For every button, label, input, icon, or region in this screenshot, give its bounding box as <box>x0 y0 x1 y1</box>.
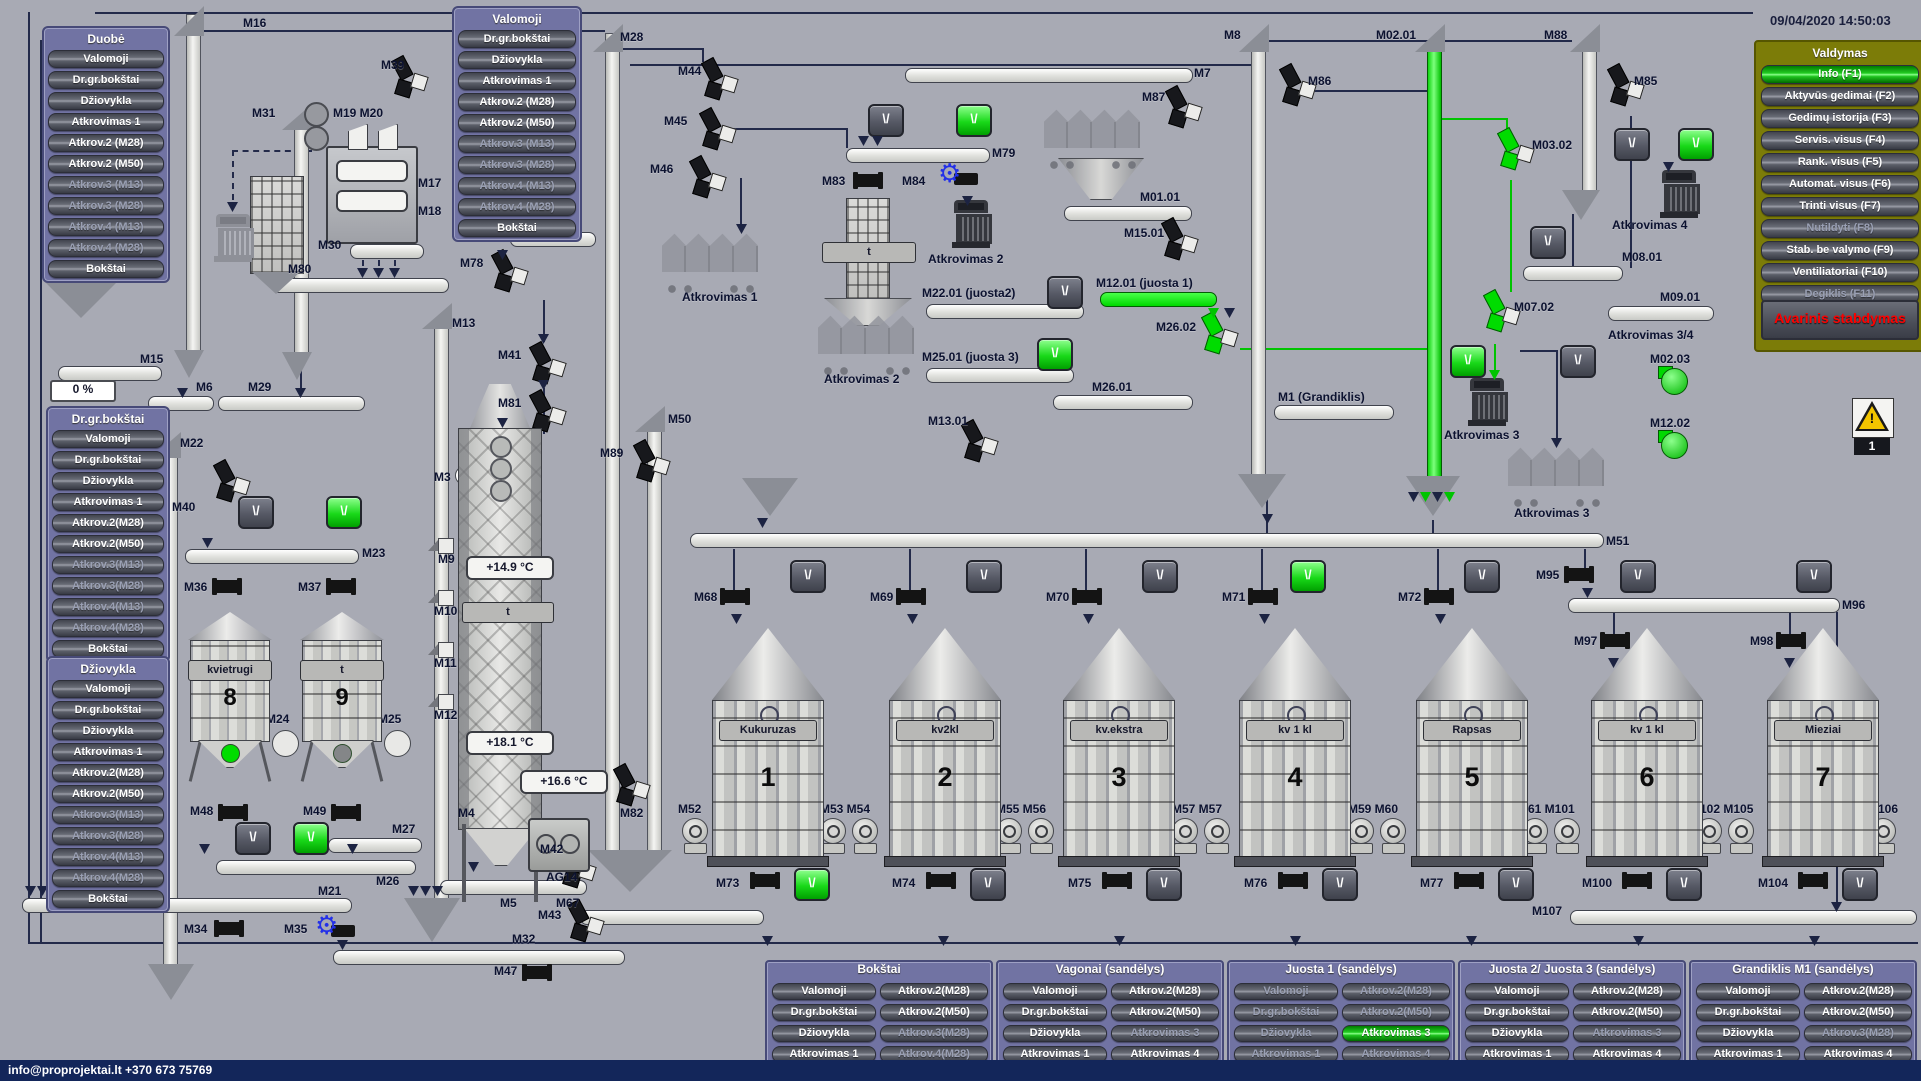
valve-button[interactable]: \/ <box>1796 560 1832 593</box>
conveyor-m30[interactable] <box>350 244 424 259</box>
bottom-menu-2-right-0[interactable]: Atkrov.2(M28) <box>1342 983 1450 1000</box>
aeration-fan-m105[interactable] <box>1728 818 1754 854</box>
blower-m12-02[interactable] <box>1658 430 1688 458</box>
gearmotor-m35[interactable]: ⚙ <box>315 918 355 944</box>
flow-arrow <box>199 844 210 854</box>
menu-duobe-item-2[interactable]: Džiovykla <box>48 92 164 110</box>
diverter-m78-legr <box>510 267 529 286</box>
temp-display-1: +14.9 °C <box>466 556 554 580</box>
conveyor-m12-01[interactable] <box>1100 292 1217 307</box>
label-m45: M45 <box>664 114 687 128</box>
valve-button[interactable]: \/ <box>293 822 329 855</box>
valdymas-item-7[interactable]: Nutildyti (F8) <box>1761 219 1919 238</box>
bottom-menu-4-left-0[interactable]: Valomoji <box>1696 983 1800 1000</box>
valve-button[interactable]: \/ <box>1614 128 1650 161</box>
valve-button[interactable]: \/ <box>1666 868 1702 901</box>
label-m12: M12 <box>434 708 457 722</box>
valve-button[interactable]: \/ <box>970 868 1006 901</box>
menu-valomoji-item-4[interactable]: Atkrov.2 (M50) <box>458 114 576 132</box>
label-m35: M35 <box>284 922 307 936</box>
label-m30: M30 <box>318 238 341 252</box>
menu-valomoji-item-0[interactable]: Dr.gr.bokštai <box>458 30 576 48</box>
motor-m72[interactable] <box>1426 590 1452 603</box>
flow-arrow <box>373 268 384 278</box>
diverter-m82-stem <box>613 763 636 789</box>
motor-m104[interactable] <box>1800 874 1826 887</box>
menu-duobe-item-7[interactable]: Atkrov.3 (M28) <box>48 197 164 215</box>
diverter-m78[interactable] <box>481 245 533 302</box>
flow-arrow <box>757 518 768 528</box>
small-silo-8-name-plate: kvietrugi <box>188 660 272 681</box>
diverter-m46[interactable] <box>679 151 731 208</box>
sensor-m10-probe <box>428 592 438 603</box>
bottom-menu-2-left-1[interactable]: Dr.gr.bokštai <box>1234 1004 1338 1021</box>
label-m18: M18 <box>418 204 441 218</box>
truck-intake-wnd <box>220 217 246 224</box>
menu-dziovykla-item-4[interactable]: Atkrov.2(M28) <box>52 764 164 782</box>
truck-atkrovimas3-wnd <box>1474 381 1500 388</box>
conveyor-m09-01[interactable] <box>1608 306 1714 321</box>
aeration-fan-m57a[interactable] <box>1172 818 1198 854</box>
menu-drgr-item-2[interactable]: Džiovykla <box>52 472 164 490</box>
menu-dziovykla-item-1[interactable]: Dr.gr.bokštai <box>52 701 164 719</box>
valdymas-item-1[interactable]: Aktyvūs gedimai (F2) <box>1761 87 1919 106</box>
menu-dziovykla-item-7[interactable]: Atkrov.3(M28) <box>52 827 164 845</box>
flow-arrow <box>1435 614 1446 624</box>
diverter-m15-01[interactable] <box>1151 213 1203 270</box>
bottom-menu-1-left-0[interactable]: Valomoji <box>1003 983 1107 1000</box>
diverter-m89-legr <box>652 457 671 476</box>
footer-contact-bar: info@proprojektai.lt +370 673 75769 <box>0 1060 1921 1081</box>
motor-m73[interactable] <box>752 874 778 887</box>
motor-m69[interactable] <box>898 590 924 603</box>
menu-drgr-item-5[interactable]: Atkrov.2(M50) <box>52 535 164 553</box>
bottom-menu-3-left-1[interactable]: Dr.gr.bokštai <box>1465 1004 1569 1021</box>
aeration-fan-m60-base <box>1382 843 1405 854</box>
bottom-menu-3-left-2[interactable]: Džiovykla <box>1465 1025 1569 1042</box>
sensor-m12-probe <box>428 696 438 707</box>
valdymas-item-3[interactable]: Servis. visus (F4) <box>1761 131 1919 150</box>
silo-2-number: 2 <box>889 762 1001 793</box>
gearmotor-m84[interactable]: ⚙ <box>938 166 978 192</box>
valve-button[interactable]: \/ <box>956 104 992 137</box>
menu-dziovykla-item-0[interactable]: Valomoji <box>52 680 164 698</box>
motor-m100[interactable] <box>1624 874 1650 887</box>
scale-plate-t: t <box>822 242 916 263</box>
diverter-m89[interactable] <box>623 435 675 492</box>
chute-m16-top <box>174 6 204 36</box>
menu-duobe-item-5[interactable]: Atkrov.2 (M50) <box>48 155 164 173</box>
valdymas-item-9[interactable]: Ventiliatoriai (F10) <box>1761 263 1919 282</box>
label-m09-01: M09.01 <box>1660 290 1700 304</box>
bottom-menu-4-right-1[interactable]: Atkrov.2(M50) <box>1804 1004 1912 1021</box>
label-m75: M75 <box>1068 876 1091 890</box>
silo-1-roof <box>712 628 824 700</box>
menu-drgr-item-4[interactable]: Atkrov.2(M28) <box>52 514 164 532</box>
conveyor-m96[interactable] <box>1568 598 1840 613</box>
motor-m76[interactable] <box>1280 874 1306 887</box>
bottom-menu-2-right-1[interactable]: Atkrov.2(M50) <box>1342 1004 1450 1021</box>
silo-7-name-plate: Mieziai <box>1774 720 1872 741</box>
aeration-fan-m56[interactable] <box>1028 818 1054 854</box>
pipe <box>1432 520 1434 534</box>
valve-button[interactable]: \/ <box>966 560 1002 593</box>
elevator-m16[interactable] <box>186 14 201 352</box>
motor-m83[interactable] <box>855 174 881 187</box>
bottom-menu-3-right-0[interactable]: Atkrov.2(M28) <box>1573 983 1681 1000</box>
conveyor-m67[interactable] <box>580 910 764 925</box>
bottom-menu-3-title: Juosta 2/ Juosta 3 (sandėlys) <box>1460 962 1684 977</box>
silo-6-base <box>1586 856 1708 867</box>
conveyor-m79[interactable] <box>846 148 990 163</box>
truck-atkrovimas3 <box>1464 378 1510 426</box>
valdymas-item-4[interactable]: Rank. visus (F5) <box>1761 153 1919 172</box>
conveyor-m1-grandiklis[interactable] <box>1274 405 1394 420</box>
valve-button[interactable]: \/ <box>790 560 826 593</box>
truck-atkrovimas4 <box>1656 170 1702 218</box>
bottom-menu-1-right-0[interactable]: Atkrov.2(M28) <box>1111 983 1219 1000</box>
flow-arrow <box>227 202 238 212</box>
bottom-menu-1-right-2[interactable]: Atkrovimas 3 <box>1111 1025 1219 1042</box>
valdymas-item-6[interactable]: Trinti visus (F7) <box>1761 197 1919 216</box>
label-m26-01: M26.01 <box>1092 380 1132 394</box>
label-atkrovimas3-truck: Atkrovimas 3 <box>1444 428 1519 442</box>
menu-panel-valomoji: ValomojiDr.gr.bokštaiDžiovyklaAtkrovimas… <box>452 6 582 242</box>
chute-m88-top <box>1570 24 1600 52</box>
datetime-display: 09/04/2020 14:50:03 <box>1770 13 1891 28</box>
diverter-m15-01-legr <box>1180 235 1199 254</box>
motor-m48[interactable] <box>220 806 246 819</box>
pipe <box>740 178 742 226</box>
diverter-m45-stem <box>699 107 722 133</box>
label-m12-02: M12.02 <box>1650 416 1690 430</box>
aeration-fan-m52[interactable] <box>682 818 708 854</box>
flow-arrow <box>1259 614 1270 624</box>
menu-duobe-item-9[interactable]: Atkrov.4 (M28) <box>48 239 164 257</box>
bottom-menu-1-right-1[interactable]: Atkrov.2(M50) <box>1111 1004 1219 1021</box>
aeration-fan-m59[interactable] <box>1348 818 1374 854</box>
flow-arrow <box>858 136 869 146</box>
label-m89: M89 <box>600 446 623 460</box>
conveyor-m15[interactable] <box>58 366 162 381</box>
flow-arrow <box>357 268 368 278</box>
label-m68: M68 <box>694 590 717 604</box>
silo-6: kv 1 kl6 <box>1591 628 1703 864</box>
bottom-menu-0-left-1[interactable]: Dr.gr.bokštai <box>772 1004 876 1021</box>
menu-valomoji-item-2[interactable]: Atkrovimas 1 <box>458 72 576 90</box>
bottom-menu-0-left-2[interactable]: Džiovykla <box>772 1025 876 1042</box>
menu-duobe-item-3[interactable]: Atkrovimas 1 <box>48 113 164 131</box>
label-m11: M11 <box>434 656 457 670</box>
pipe-green <box>1440 118 1508 120</box>
bottom-menu-1-left-1[interactable]: Dr.gr.bokštai <box>1003 1004 1107 1021</box>
menu-duobe-item-1[interactable]: Dr.gr.bokštai <box>48 71 164 89</box>
label-m74: M74 <box>892 876 915 890</box>
conveyor-m23[interactable] <box>185 549 359 564</box>
label-m55-m56: M55 M56 <box>996 802 1046 816</box>
label-m80: M80 <box>288 262 311 276</box>
label-m22-01: M22.01 (juosta2) <box>922 286 1015 300</box>
bottom-menu-3-left-0[interactable]: Valomoji <box>1465 983 1569 1000</box>
truck-atkrovimas4-wnd <box>1666 173 1692 180</box>
elevator-m8[interactable] <box>1251 48 1266 478</box>
valve-button[interactable]: \/ <box>1322 868 1358 901</box>
label-m70: M70 <box>1046 590 1069 604</box>
menu-valomoji-item-1[interactable]: Džiovykla <box>458 51 576 69</box>
indicator-m24 <box>272 730 299 757</box>
motor-m68[interactable] <box>722 590 748 603</box>
motor-m70[interactable] <box>1074 590 1100 603</box>
valve-button[interactable]: \/ <box>868 104 904 137</box>
silo-7-base <box>1762 856 1884 867</box>
aeration-fan-m54[interactable] <box>852 818 878 854</box>
bottom-menu-4-left-column: ValomojiDr.gr.bokštaiDžiovyklaAtkrovimas… <box>1696 979 1798 1063</box>
label-m79: M79 <box>992 146 1015 160</box>
bottom-menu-4-left-2[interactable]: Džiovykla <box>1696 1025 1800 1042</box>
motor-m37[interactable] <box>328 580 354 593</box>
label-m81: M81 <box>498 396 521 410</box>
menu-valomoji-item-3[interactable]: Atkrov.2 (M28) <box>458 93 576 111</box>
diverter-m45[interactable] <box>689 103 741 160</box>
elevator-m02-01[interactable] <box>1427 48 1442 480</box>
label-m40: M40 <box>172 500 195 514</box>
truck-atkrovimas2 <box>948 200 994 248</box>
menu-drgr-item-0[interactable]: Valomoji <box>52 430 164 448</box>
motor-m74[interactable] <box>928 874 954 887</box>
dryer-tower-c3 <box>490 480 512 502</box>
valve-button[interactable]: \/ <box>1842 868 1878 901</box>
label-m17: M17 <box>418 176 441 190</box>
silo-2-name-plate: kv2kl <box>896 720 994 741</box>
menu-valomoji-item-8[interactable]: Atkrov.4 (M28) <box>458 198 576 216</box>
diverter-m13-01-legr <box>980 437 999 456</box>
valve-button[interactable]: \/ <box>326 496 362 529</box>
label-m28: M28 <box>620 30 643 44</box>
silo-1-base <box>707 856 829 867</box>
menu-drgr-item-6[interactable]: Atkrov.3(M13) <box>52 556 164 574</box>
truck-intake-grl <box>218 228 254 258</box>
menu-valomoji-item-9[interactable]: Bokštai <box>458 219 576 237</box>
valve-button[interactable]: \/ <box>1142 560 1178 593</box>
small-silo-8: kvietrugi8 <box>188 612 272 782</box>
elevator-m88[interactable] <box>1582 48 1597 194</box>
conveyor-m29[interactable] <box>218 396 365 411</box>
small-silo-8-leg-right <box>258 738 272 781</box>
bottom-menu-3-right-2[interactable]: Atkrovimas 3 <box>1573 1025 1681 1042</box>
bottom-menu-2-right-2[interactable]: Atkrovimas 3 <box>1342 1025 1450 1042</box>
menu-duobe-item-0[interactable]: Valomoji <box>48 50 164 68</box>
menu-dziovykla-item-9[interactable]: Atkrov.4(M28) <box>52 869 164 887</box>
blower-m02-03[interactable] <box>1658 366 1688 394</box>
valdymas-item-5[interactable]: Automat. visus (F6) <box>1761 175 1919 194</box>
conveyor-m27[interactable] <box>328 838 422 853</box>
menu-dziovykla-item-10[interactable]: Bokštai <box>52 890 164 908</box>
cleaner-m17-m18-s2 <box>336 190 408 212</box>
valve-button[interactable]: \/ <box>1464 560 1500 593</box>
silo-2-roof <box>889 628 1001 700</box>
motor-m49[interactable] <box>333 806 359 819</box>
elevator-m28[interactable] <box>605 33 620 855</box>
menu-duobe-item-6[interactable]: Atkrov.3 (M13) <box>48 176 164 194</box>
bottom-menu-2-left-0[interactable]: Valomoji <box>1234 983 1338 1000</box>
conveyor-m26[interactable] <box>216 860 416 875</box>
cleaner-m17-m18-s1 <box>336 160 408 182</box>
alarm-indicator-count: 1 <box>1854 438 1890 455</box>
menu-duobe-item-4[interactable]: Atkrov.2 (M28) <box>48 134 164 152</box>
conveyor-m08-01[interactable] <box>1523 266 1623 281</box>
pipe <box>702 48 704 62</box>
small-silo-9-name-plate: t <box>300 660 384 681</box>
label-m21: M21 <box>318 884 341 898</box>
silo-4: kv 1 kl4 <box>1239 628 1351 864</box>
valve-button[interactable]: \/ <box>238 496 274 529</box>
label-m51: M51 <box>1606 534 1629 548</box>
silo-5-name-plate: Rapsas <box>1423 720 1521 741</box>
menu-drgr-item-7[interactable]: Atkrov.3(M28) <box>52 577 164 595</box>
diverter-m40-stem <box>213 459 236 485</box>
menu-dziovykla-item-3[interactable]: Atkrovimas 1 <box>52 743 164 761</box>
valve-button[interactable]: \/ <box>1678 128 1714 161</box>
bottom-menu-2-title: Juosta 1 (sandėlys) <box>1229 962 1453 977</box>
menu-dziovykla-item-8[interactable]: Atkrov.4(M13) <box>52 848 164 866</box>
valve-button[interactable]: \/ <box>1047 276 1083 309</box>
valdymas-item-2[interactable]: Gedimų istorija (F3) <box>1761 109 1919 128</box>
motor-m36[interactable] <box>214 580 240 593</box>
menu-duobe-item-10[interactable]: Bokštai <box>48 260 164 278</box>
diverter-m81-legr <box>548 407 567 426</box>
label-m9: M9 <box>438 552 455 566</box>
valve-button[interactable]: \/ <box>1620 560 1656 593</box>
label-m23: M23 <box>362 546 385 560</box>
label-m1: M1 (Grandiklis) <box>1278 390 1365 404</box>
funnel-m28-m50 <box>588 850 672 892</box>
valve-button[interactable]: \/ <box>1498 868 1534 901</box>
label-m07-02: M07.02 <box>1514 300 1554 314</box>
menu-dziovykla-item-2[interactable]: Džiovykla <box>52 722 164 740</box>
conveyor-m107[interactable] <box>1570 910 1917 925</box>
valve-button[interactable]: \/ <box>1146 868 1182 901</box>
bottom-menu-4-right-2[interactable]: Atkrov.3(M28) <box>1804 1025 1912 1042</box>
sensor-m9 <box>428 538 454 553</box>
motor-m75[interactable] <box>1104 874 1130 887</box>
motor-m95[interactable] <box>1566 568 1592 581</box>
diverter-m45-legr <box>718 125 737 144</box>
flow-arrow <box>938 936 949 946</box>
chute-m31-bottom <box>282 352 312 380</box>
bottom-menu-2-left-2[interactable]: Džiovykla <box>1234 1025 1338 1042</box>
flow-arrow <box>1114 936 1125 946</box>
pipe <box>909 549 911 591</box>
diverter-m41-legr <box>548 359 567 378</box>
motor-m71[interactable] <box>1250 590 1276 603</box>
diverter-m07-02-stem <box>1483 289 1506 315</box>
conveyor-m7[interactable] <box>905 68 1193 83</box>
dryer-tower-legL <box>462 824 466 902</box>
silo-6-roof <box>1591 628 1703 700</box>
aeration-fan-m60[interactable] <box>1380 818 1406 854</box>
bottom-menu-4-right-0[interactable]: Atkrov.2(M28) <box>1804 983 1912 1000</box>
silo-4-roof <box>1239 628 1351 700</box>
valve-button[interactable]: \/ <box>1450 345 1486 378</box>
valdymas-item-8[interactable]: Stab. be valymo (F9) <box>1761 241 1919 260</box>
bottom-menu-0-right-0[interactable]: Atkrov.2(M28) <box>880 983 988 1000</box>
menu-drgr-item-1[interactable]: Dr.gr.bokštai <box>52 451 164 469</box>
diverter-m44-legr <box>720 75 739 94</box>
label-m29: M29 <box>248 380 271 394</box>
motor-m34[interactable] <box>216 922 242 935</box>
aeration-fan-m55-base <box>998 843 1021 854</box>
menu-drgr-item-8[interactable]: Atkrov.4(M13) <box>52 598 164 616</box>
valve-button[interactable]: \/ <box>1560 345 1596 378</box>
diverter-m26-02[interactable] <box>1191 307 1243 364</box>
conveyor-m80[interactable] <box>272 278 449 293</box>
aeration-fan-m56-hub <box>1035 825 1048 838</box>
conveyor-m51[interactable] <box>690 533 1604 548</box>
flow-arrow <box>202 538 213 548</box>
valve-button[interactable]: \/ <box>1037 338 1073 371</box>
bottom-menu-0-left-0[interactable]: Valomoji <box>772 983 876 1000</box>
dryer-tower-hop <box>464 828 538 866</box>
pipe <box>1085 549 1087 591</box>
bottom-menu-0-title: Bokštai <box>767 962 991 977</box>
bottom-menu-0-right-1[interactable]: Atkrov.2(M50) <box>880 1004 988 1021</box>
chute-m02-01-top <box>1415 24 1445 52</box>
valdymas-item-0[interactable]: Info (F1) <box>1761 65 1919 84</box>
label-atkrovimas2-wagon: Atkrovimas 2 <box>824 372 899 386</box>
menu-duobe-item-8[interactable]: Atkrov.4 (M13) <box>48 218 164 236</box>
label-m88: M88 <box>1544 28 1567 42</box>
label-m15: M15 <box>140 352 163 366</box>
menu-panel-duobe: DuobėValomojiDr.gr.bokštaiDžiovyklaAtkro… <box>42 26 170 283</box>
valve-button[interactable]: \/ <box>1530 226 1566 259</box>
bottom-menu-4-left-1[interactable]: Dr.gr.bokštai <box>1696 1004 1800 1021</box>
conveyor-m32[interactable] <box>333 950 625 965</box>
motor-m77[interactable] <box>1456 874 1482 887</box>
label-m95: M95 <box>1536 568 1559 582</box>
valve-button[interactable]: \/ <box>794 868 830 901</box>
aeration-fan-m101[interactable] <box>1554 818 1580 854</box>
silo-1: Kukuruzas1 <box>712 628 824 864</box>
menu-drgr-item-3[interactable]: Atkrovimas 1 <box>52 493 164 511</box>
menu-drgr-item-9[interactable]: Atkrov.4(M28) <box>52 619 164 637</box>
label-m13: M13 <box>452 316 475 330</box>
truck-atkrovimas3-grl <box>1472 392 1508 422</box>
menu-dziovykla-item-5[interactable]: Atkrov.2(M50) <box>52 785 164 803</box>
bottom-menu-3-right-1[interactable]: Atkrov.2(M50) <box>1573 1004 1681 1021</box>
diverter-m40-legr <box>232 477 251 496</box>
diverter-m44[interactable] <box>691 53 743 110</box>
motor-m47[interactable] <box>524 966 550 979</box>
flow-arrow <box>1633 936 1644 946</box>
menu-dziovykla-item-6[interactable]: Atkrov.3(M13) <box>52 806 164 824</box>
silo-5-roof <box>1416 628 1528 700</box>
diverter-m03-02-stem <box>1497 127 1520 153</box>
bottom-menu-0-right-2[interactable]: Atkrov.3(M28) <box>880 1025 988 1042</box>
emergency-stop-button[interactable]: Avarinis stabdymas <box>1761 300 1919 340</box>
label-m85: M85 <box>1634 74 1657 88</box>
menu-valomoji-item-7[interactable]: Atkrov.4 (M13) <box>458 177 576 195</box>
label-m76: M76 <box>1244 876 1267 890</box>
valve-button[interactable]: \/ <box>235 822 271 855</box>
chute-m16-bottom <box>174 350 204 378</box>
conveyor-m26-01[interactable] <box>1053 395 1193 410</box>
valve-button[interactable]: \/ <box>1290 560 1326 593</box>
aeration-fan-m57b[interactable] <box>1204 818 1230 854</box>
bottom-menu-1-left-2[interactable]: Džiovykla <box>1003 1025 1107 1042</box>
menu-valomoji-item-5[interactable]: Atkrov.3 (M13) <box>458 135 576 153</box>
label-m26: M26 <box>376 874 399 888</box>
menu-valomoji-item-6[interactable]: Atkrov.3 (M28) <box>458 156 576 174</box>
